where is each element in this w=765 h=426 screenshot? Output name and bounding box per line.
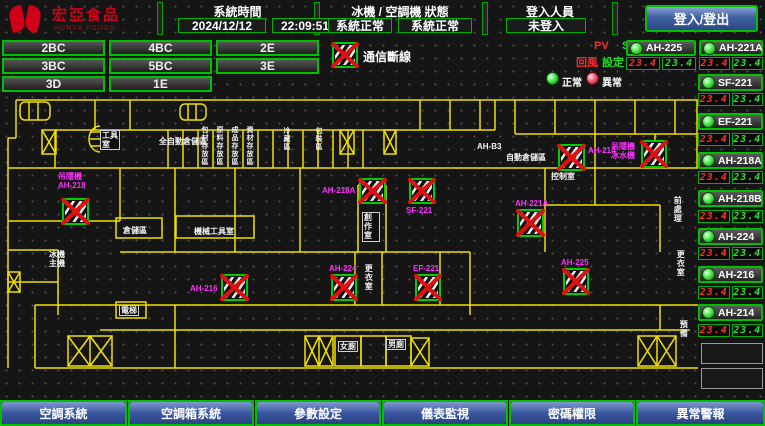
unit-name: AH-221A <box>719 42 763 54</box>
map-equip-1-icon[interactable] <box>221 274 248 301</box>
sv-value: 23.4 <box>732 210 764 223</box>
map-equip-4-label: AH-224 <box>329 264 357 273</box>
map-equip-2-icon[interactable] <box>359 178 386 204</box>
floor-button-4bc[interactable]: 4BC <box>109 40 212 56</box>
pv-legend-label: PV <box>594 40 609 52</box>
map-equip-0-icon[interactable] <box>62 198 89 225</box>
room-label: 機械工具室 <box>193 227 235 236</box>
unit-button-ah-218b[interactable]: AH-218B <box>698 190 763 207</box>
sv-value: 23.4 <box>732 171 764 184</box>
room-label: 男廁 <box>386 339 406 350</box>
sv-desc-label: 設定 <box>602 54 624 70</box>
spare-slot <box>701 343 763 364</box>
brand-logo-icon <box>6 3 46 35</box>
room-label: 成品存放區 <box>229 126 239 168</box>
chiller-status: 系統正常 <box>328 18 392 33</box>
unit-name: AH-225 <box>646 42 682 54</box>
unit-values: 23.4 23.4 <box>699 57 763 70</box>
login-logout-button[interactable]: 登入/登出 <box>645 5 758 32</box>
nav-button-password-permission[interactable]: 密碼權限 <box>511 402 633 424</box>
sv-value: 23.4 <box>732 133 764 146</box>
map-equip-7-label: AH-225 <box>561 258 589 267</box>
unit-button-ah-221a[interactable]: AH-221A <box>699 40 763 56</box>
abnormal-legend-label: 異常 <box>602 74 622 89</box>
header-separator <box>612 2 618 35</box>
header-separator <box>157 2 163 35</box>
pv-value: 23.4 <box>698 247 730 260</box>
floor-button-2e[interactable]: 2E <box>216 40 319 56</box>
map-equip-3-icon[interactable] <box>409 178 435 204</box>
floor-button-2bc[interactable]: 2BC <box>2 40 105 56</box>
room-label: 冷藏區 <box>281 127 291 165</box>
status-lamp <box>702 192 715 205</box>
spare-slot <box>701 368 763 389</box>
sv-value: 23.4 <box>732 324 764 337</box>
pv-value: 23.4 <box>698 133 730 146</box>
pv-value: 23.4 <box>698 171 730 184</box>
brand-name: 宏亞食品 <box>52 8 120 23</box>
abnormal-lamp-icon <box>586 72 599 85</box>
normal-legend-label: 正常 <box>562 74 582 89</box>
normal-lamp-icon <box>546 72 559 85</box>
room-label: 包材存放區 <box>199 126 209 168</box>
nav-button-ahu-system[interactable]: 空調箱系統 <box>130 402 252 424</box>
map-equip-1-label: AH-216 <box>190 284 218 293</box>
room-label: 包裝區 <box>313 127 323 165</box>
nav-cell: 儀表監視 <box>382 400 508 426</box>
status-lamp <box>702 154 715 167</box>
map-equip-7-icon[interactable] <box>563 268 589 295</box>
comm-loss-legend-label: 通信斷線 <box>363 48 411 65</box>
room-label: 前處理 <box>672 196 683 228</box>
unit-values: 23.4 23.4 <box>626 57 696 70</box>
map-equip-9-label: 吊隱機 冰水機 <box>611 142 639 160</box>
room-label: 原料存放區 <box>214 126 224 168</box>
status-lamp <box>702 76 715 89</box>
brand-subtitle: HUNYA FOODS <box>54 25 116 32</box>
room-label: 資材存放區 <box>244 126 254 168</box>
nav-cell: 密碼權限 <box>509 400 635 426</box>
map-equip-9-icon[interactable] <box>641 140 667 168</box>
pv-value: 23.4 <box>698 210 730 223</box>
room-label: 更衣室 <box>675 250 686 282</box>
unit-button-ef-221[interactable]: EF-221 <box>698 113 763 130</box>
pv-desc-label: 回風 <box>576 54 598 70</box>
unit-button-ah-224[interactable]: AH-224 <box>698 228 763 245</box>
room-label: 更衣室 <box>363 264 374 300</box>
nav-button-parameter-settings[interactable]: 參數設定 <box>257 402 379 424</box>
room-label: 預備 <box>678 320 689 344</box>
system-date: 2024/12/12 <box>178 18 266 33</box>
login-status: 未登入 <box>506 18 586 33</box>
unit-values: 23.4 23.4 <box>698 133 763 146</box>
unit-name: AH-224 <box>718 231 754 243</box>
unit-values: 23.4 23.4 <box>698 93 763 106</box>
room-label: 創作室 <box>362 212 380 242</box>
floor-button-3bc[interactable]: 3BC <box>2 58 105 74</box>
nav-button-abnormal-alarm[interactable]: 異常警報 <box>638 402 763 424</box>
map-equip-5-label: EF-221 <box>413 264 439 273</box>
status-lamp <box>702 115 715 128</box>
unit-name: AH-214 <box>718 307 754 319</box>
map-equip-6-icon[interactable] <box>517 209 544 237</box>
header-separator <box>482 2 488 35</box>
unit-name: AH-216 <box>718 269 754 281</box>
room-label: 工具室 <box>100 130 120 150</box>
unit-name: AH-218A <box>718 155 762 167</box>
map-equip-8-icon[interactable] <box>558 144 585 171</box>
pv-value: 23.4 <box>698 286 730 299</box>
pv-value: 23.4 <box>698 93 730 106</box>
map-equip-5-icon[interactable] <box>415 274 441 301</box>
nav-cell: 空調箱系統 <box>128 400 254 426</box>
room-label: 控制室 <box>550 172 576 181</box>
unit-values: 23.4 23.4 <box>698 286 763 299</box>
status-lamp <box>702 268 715 281</box>
room-label: AH-B3 <box>476 142 502 151</box>
room-label: 女廁 <box>338 341 358 352</box>
unit-values: 23.4 23.4 <box>698 247 763 260</box>
map-equip-2-label: AH-218A <box>322 186 355 195</box>
room-label: 冰機主機 <box>48 250 66 268</box>
sv-value: 23.4 <box>662 57 696 70</box>
sv-value: 23.4 <box>732 286 764 299</box>
unit-name: EF-221 <box>718 116 752 128</box>
ac-status: 系統正常 <box>398 18 472 33</box>
brand-logo: 宏亞食品 HUNYA FOODS <box>4 2 154 36</box>
sv-value: 23.4 <box>732 93 764 106</box>
map-equip-0-label: 吊隱機 AH-218 <box>58 172 92 190</box>
nav-button-instrument-monitor[interactable]: 儀表監視 <box>384 402 506 424</box>
floor-button-3d[interactable]: 3D <box>2 76 105 92</box>
sv-value: 23.4 <box>732 57 763 70</box>
pv-value: 23.4 <box>626 57 660 70</box>
nav-cell: 參數設定 <box>255 400 381 426</box>
comm-loss-legend-icon <box>332 42 358 68</box>
nav-cell: 空調系統 <box>0 400 127 426</box>
unit-values: 23.4 23.4 <box>698 171 763 184</box>
status-lamp <box>702 230 715 243</box>
pv-value: 23.4 <box>699 57 730 70</box>
map-equip-3-label: SF-221 <box>406 206 432 215</box>
pv-value: 23.4 <box>698 324 730 337</box>
floor-button-3e[interactable]: 3E <box>216 58 319 74</box>
floor-button-5bc[interactable]: 5BC <box>109 58 212 74</box>
unit-values: 23.4 23.4 <box>698 210 763 223</box>
room-label: 自動倉儲區 <box>505 153 547 162</box>
nav-button-ac-system[interactable]: 空調系統 <box>2 402 125 424</box>
room-label: 電梯 <box>119 305 139 316</box>
map-equip-4-icon[interactable] <box>331 274 357 301</box>
sv-value: 23.4 <box>732 247 764 260</box>
floor-button-1e[interactable]: 1E <box>109 76 212 92</box>
unit-button-sf-221[interactable]: SF-221 <box>698 74 763 91</box>
map-equip-6-label: AH-221A <box>515 199 548 208</box>
unit-button-ah-218a[interactable]: AH-218A <box>698 152 763 169</box>
unit-button-ah-225[interactable]: AH-225 <box>626 40 696 56</box>
status-lamp <box>630 42 643 55</box>
status-lamp <box>703 42 716 55</box>
nav-cell: 異常警報 <box>636 400 765 426</box>
unit-name: AH-218B <box>718 193 762 205</box>
unit-button-ah-216[interactable]: AH-216 <box>698 266 763 283</box>
unit-name: SF-221 <box>718 77 752 89</box>
room-label: 倉儲區 <box>122 226 148 235</box>
status-lamp <box>702 306 715 319</box>
unit-button-ah-214[interactable]: AH-214 <box>698 304 763 321</box>
unit-values: 23.4 23.4 <box>698 324 763 337</box>
